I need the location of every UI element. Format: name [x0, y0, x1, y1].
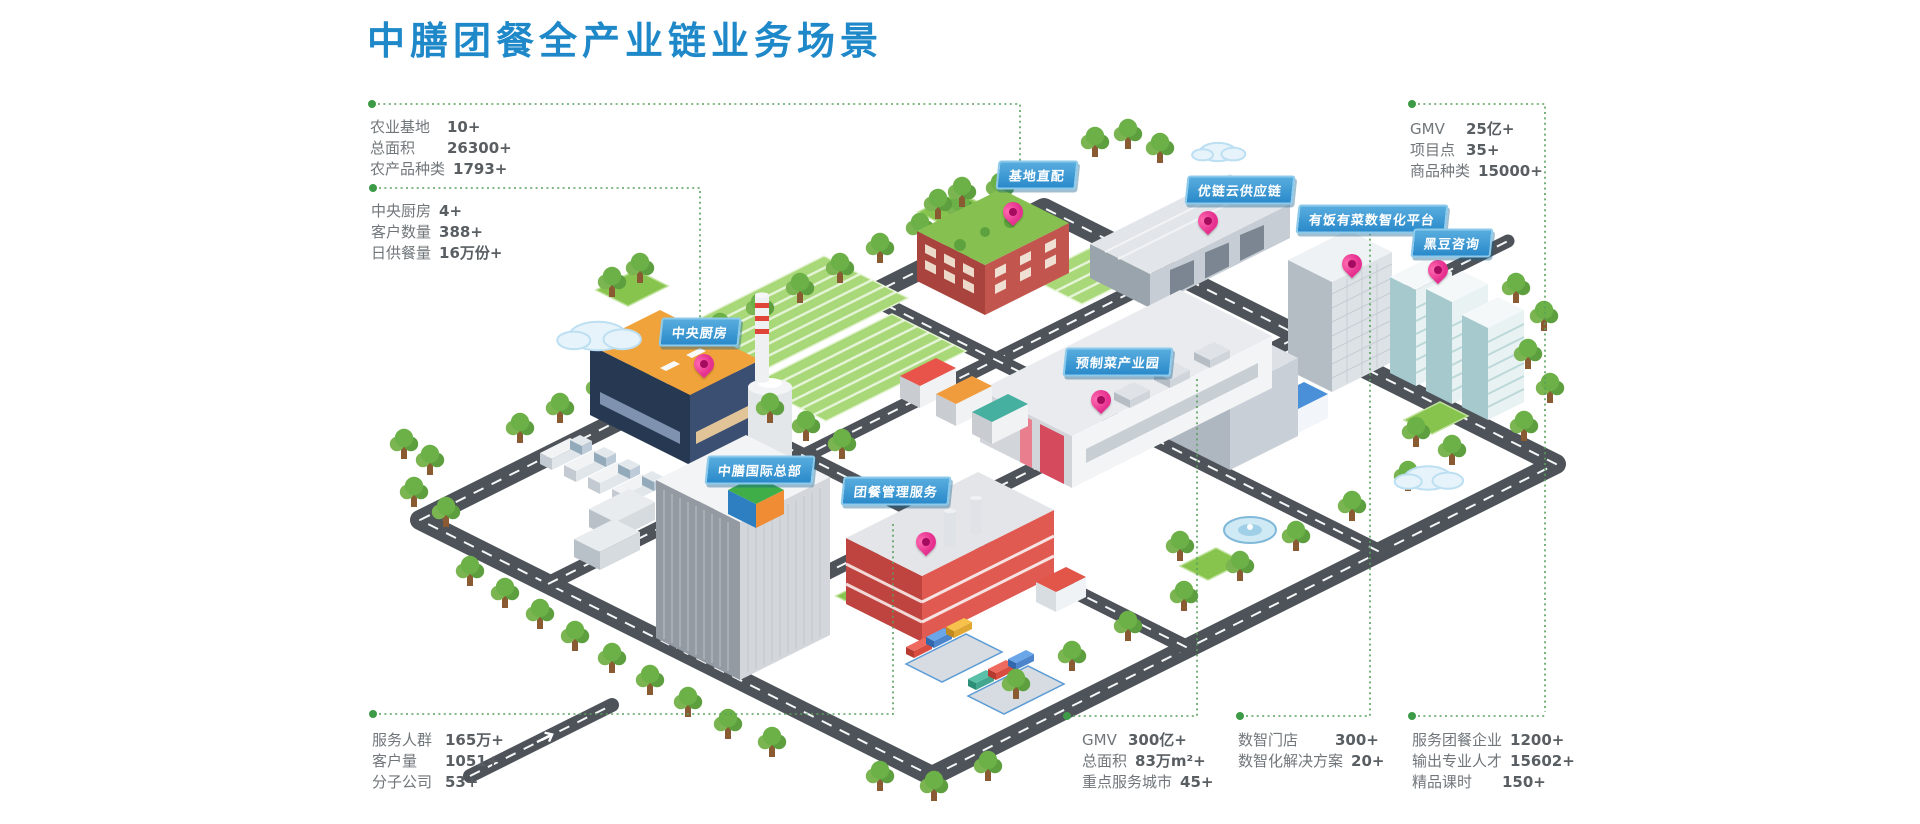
stat-row: 数智化解决方案20+ — [1238, 751, 1384, 772]
map-label-zhongshan-hq: 中膳国际总部 — [704, 456, 815, 485]
stat-label: 总面积 — [370, 138, 447, 159]
stat-value: 300亿+ — [1128, 731, 1187, 749]
stat-label: 中央厨房 — [371, 201, 439, 222]
stat-row: 总面积83万m²+ — [1082, 751, 1213, 772]
stat-label: 分子公司 — [372, 772, 445, 793]
stat-row: 数智门店300+ — [1238, 730, 1384, 751]
stat-value: 45+ — [1180, 773, 1213, 791]
stat-row: 客户量1051+ — [372, 751, 504, 772]
stat-row: 服务团餐企业1200+ — [1412, 730, 1575, 751]
stat-value: 53+ — [445, 773, 478, 791]
stat-value: 300+ — [1335, 731, 1379, 749]
stat-value: 25亿+ — [1466, 120, 1514, 138]
stat-label: 总面积 — [1082, 751, 1135, 772]
stat-value: 1200+ — [1510, 731, 1564, 749]
stat-value: 388+ — [439, 223, 483, 241]
map-label-youlian-cloud-supply-chain: 优链云供应链 — [1184, 176, 1295, 205]
map-label-group-catering-service: 团餐管理服务 — [840, 477, 951, 506]
stats-central-kitchen: 中央厨房4+ 客户数量388+ 日供餐量16万份+ — [371, 201, 502, 264]
stat-row: 客户数量388+ — [371, 222, 502, 243]
stat-label: 客户量 — [372, 751, 445, 772]
stats-service-population: 服务人群165万+ 客户量1051+ 分子公司53+ — [372, 730, 504, 793]
stats-gmv-top: GMV25亿+ 项目点35+ 商品种类15000+ — [1410, 119, 1543, 182]
stat-label: 服务团餐企业 — [1412, 730, 1510, 751]
stats-digital-stores: 数智门店300+ 数智化解决方案20+ — [1238, 730, 1384, 772]
infographic-page: 中膳团餐全产业链业务场景 农业基地10+ 总面积26300+ 农产品种类1793… — [0, 0, 1920, 824]
stat-value: 150+ — [1502, 773, 1546, 791]
stat-label: 数智门店 — [1238, 730, 1335, 751]
stat-label: 项目点 — [1410, 140, 1466, 161]
stat-label: 客户数量 — [371, 222, 439, 243]
stat-label: 农产品种类 — [370, 159, 453, 180]
stats-talent-output: 服务团餐企业1200+ 输出专业人才15602+ 精品课时150+ — [1412, 730, 1575, 793]
map-label-central-kitchen: 中央厨房 — [658, 318, 741, 347]
stat-label: 日供餐量 — [371, 243, 439, 264]
stat-label: 重点服务城市 — [1082, 772, 1180, 793]
stat-label: 数智化解决方案 — [1238, 751, 1351, 772]
stat-value: 4+ — [439, 202, 462, 220]
stat-row: 服务人群165万+ — [372, 730, 504, 751]
stat-row: 总面积26300+ — [370, 138, 512, 159]
stat-value: 26300+ — [447, 139, 512, 157]
stat-label: 商品种类 — [1410, 161, 1478, 182]
stat-value: 1051+ — [445, 752, 499, 770]
page-title: 中膳团餐全产业链业务场景 — [367, 10, 883, 65]
map-label-prefab-food-park: 预制菜产业园 — [1062, 348, 1173, 377]
stat-label: GMV — [1410, 119, 1466, 140]
stat-label: 输出专业人才 — [1412, 751, 1510, 772]
stat-label: GMV — [1082, 730, 1128, 751]
stat-value: 165万+ — [445, 731, 504, 749]
stat-row: 重点服务城市45+ — [1082, 772, 1213, 793]
stat-row: GMV300亿+ — [1082, 730, 1213, 751]
stat-row: 中央厨房4+ — [371, 201, 502, 222]
stats-gmv-bottom: GMV300亿+ 总面积83万m²+ 重点服务城市45+ — [1082, 730, 1213, 793]
stat-value: 83万m²+ — [1135, 752, 1206, 770]
stat-row: 日供餐量16万份+ — [371, 243, 502, 264]
stat-row: 精品课时150+ — [1412, 772, 1575, 793]
stat-value: 1793+ — [453, 160, 507, 178]
stat-value: 16万份+ — [439, 244, 502, 262]
stat-value: 35+ — [1466, 141, 1499, 159]
map-label-heidou-consulting: 黑豆咨询 — [1410, 229, 1493, 258]
map-label-base-direct-delivery: 基地直配 — [995, 161, 1078, 190]
stat-row: 分子公司53+ — [372, 772, 504, 793]
stat-row: 农业基地10+ — [370, 117, 512, 138]
stat-row: GMV25亿+ — [1410, 119, 1543, 140]
stat-value: 20+ — [1351, 752, 1384, 770]
stat-row: 项目点35+ — [1410, 140, 1543, 161]
stat-label: 服务人群 — [372, 730, 445, 751]
stat-label: 精品课时 — [1412, 772, 1502, 793]
stat-value: 10+ — [447, 118, 480, 136]
stat-value: 15000+ — [1478, 162, 1543, 180]
stat-row: 输出专业人才15602+ — [1412, 751, 1575, 772]
stats-agriculture-base: 农业基地10+ 总面积26300+ 农产品种类1793+ — [370, 117, 512, 180]
stat-label: 农业基地 — [370, 117, 447, 138]
stat-row: 农产品种类1793+ — [370, 159, 512, 180]
stat-value: 15602+ — [1510, 752, 1575, 770]
industry-map-illustration — [0, 0, 1920, 824]
stat-row: 商品种类15000+ — [1410, 161, 1543, 182]
